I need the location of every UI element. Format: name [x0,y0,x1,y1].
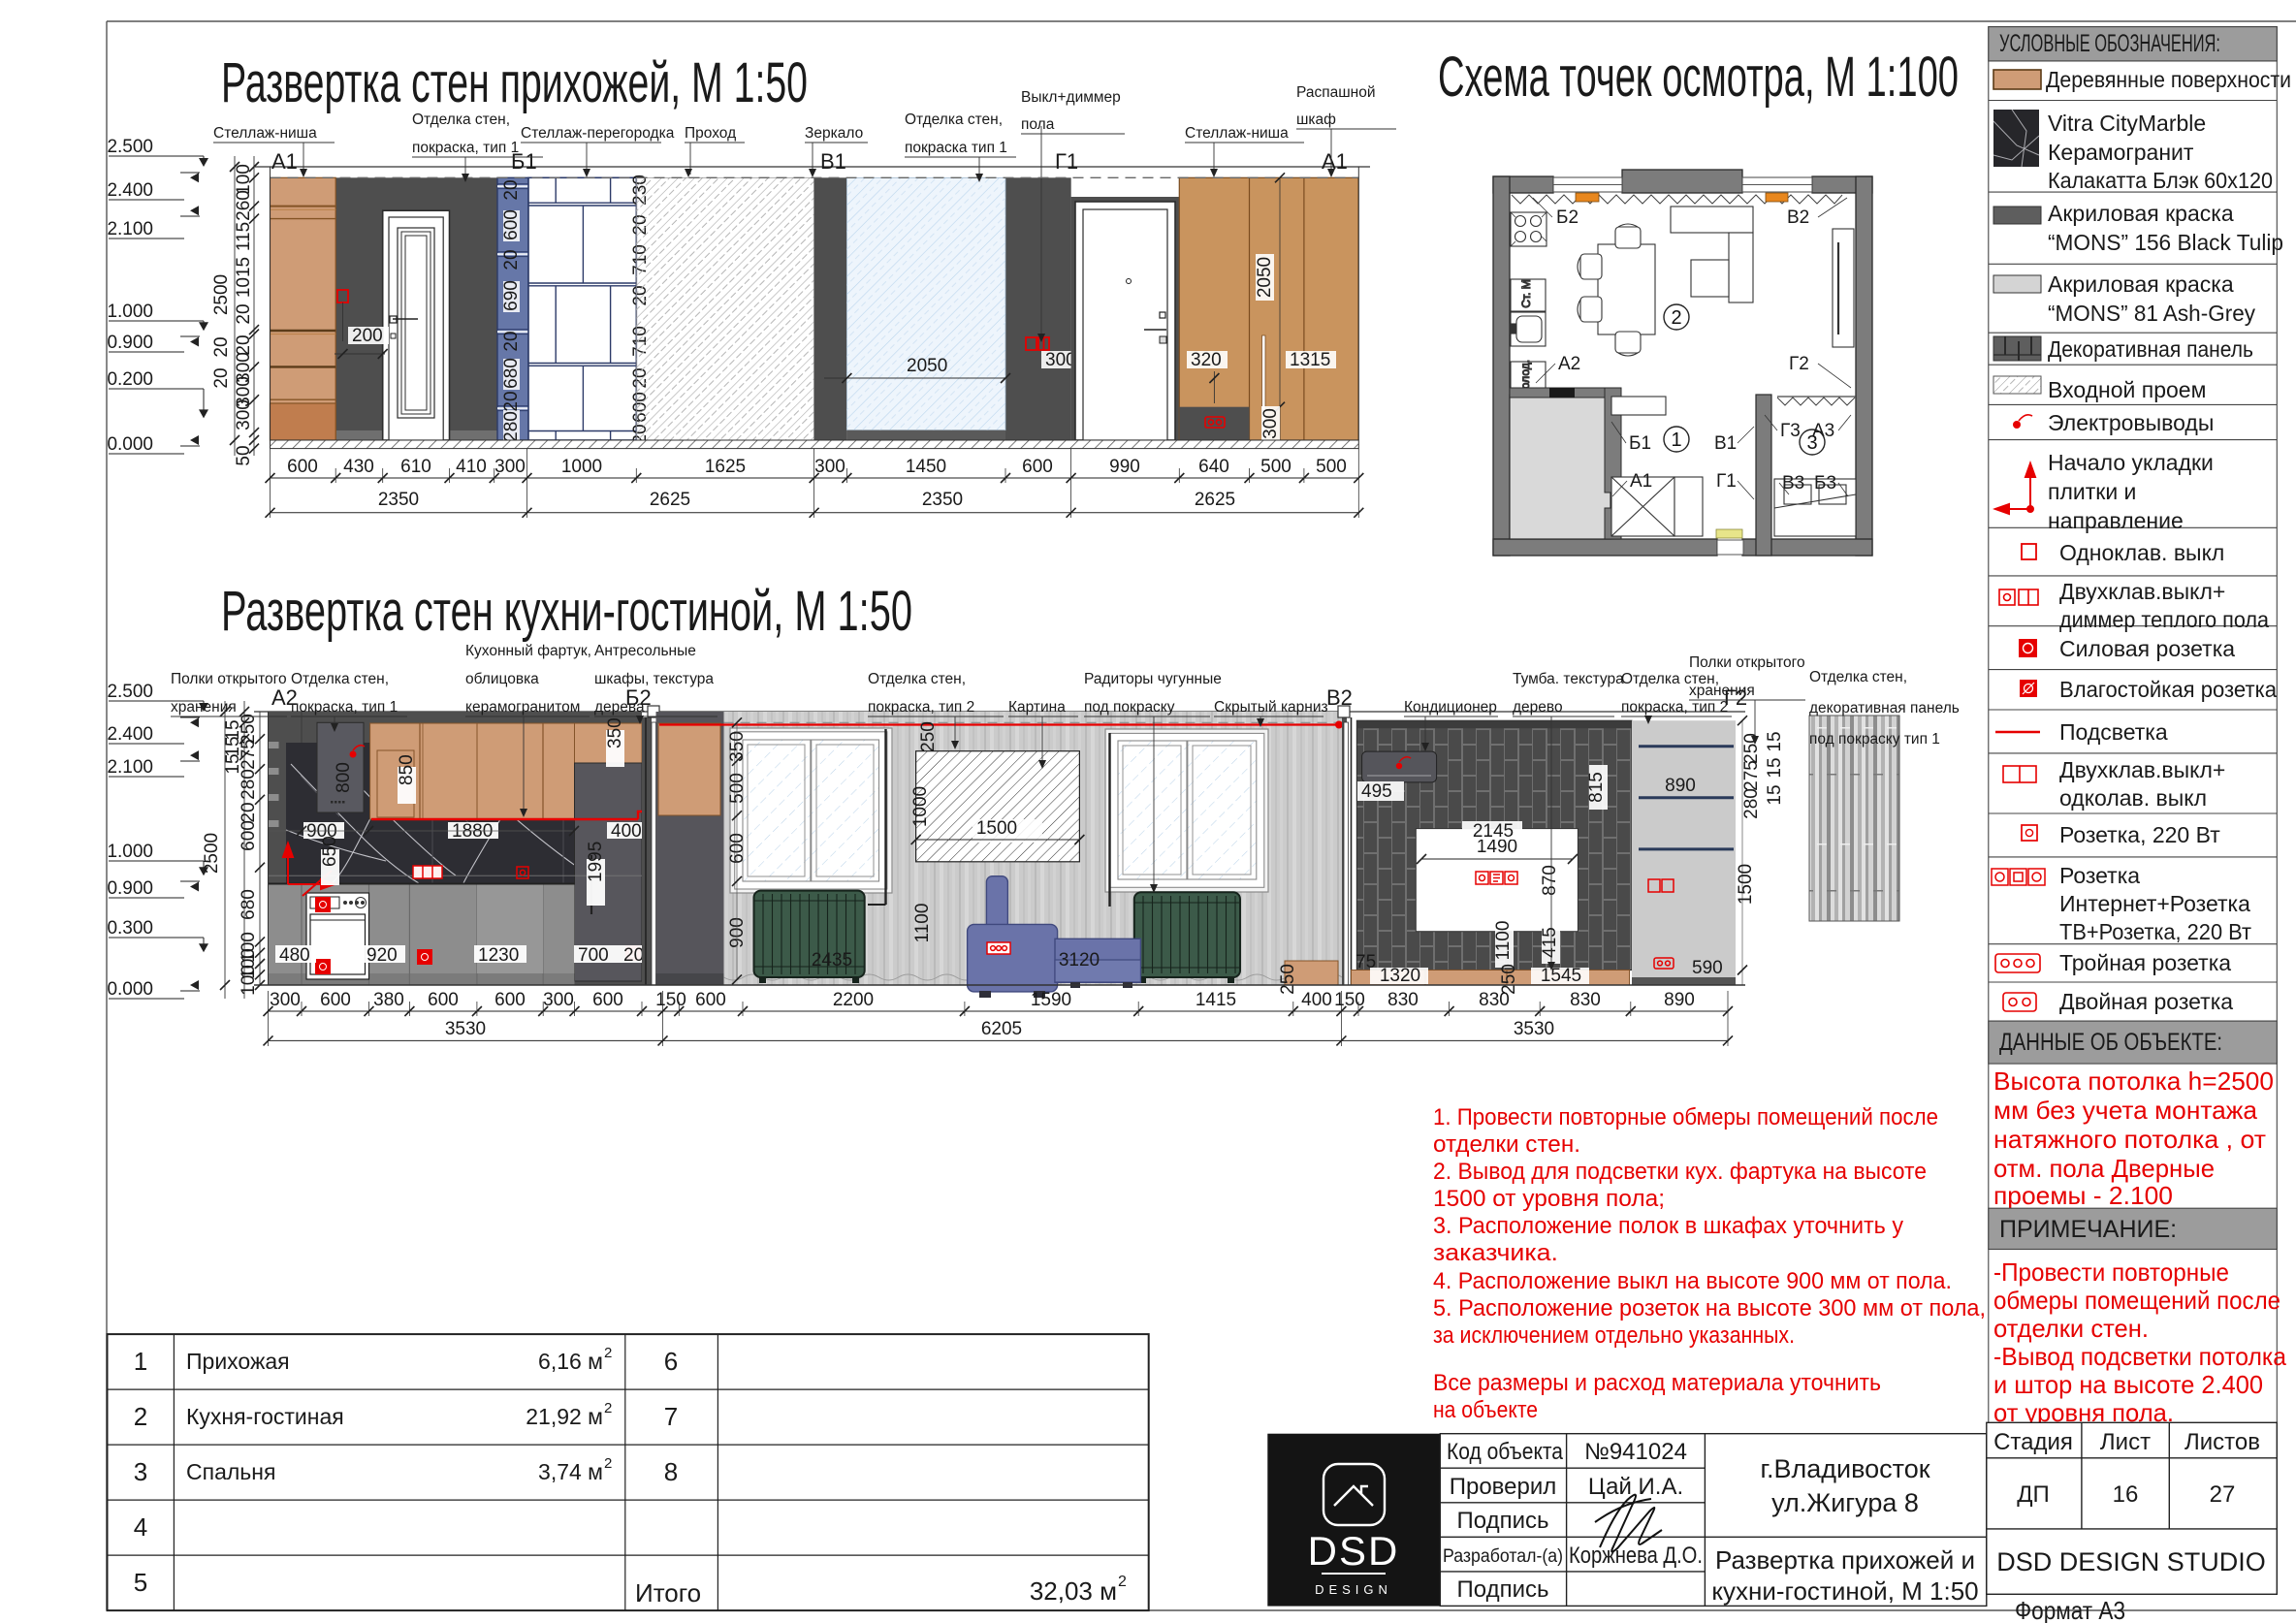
svg-text:Б2: Б2 [1556,207,1578,228]
svg-text:Проход: Проход [685,125,736,142]
svg-text:350: 350 [727,731,748,762]
svg-text:мм без учета монтажа: мм без учета монтажа [1993,1096,2258,1125]
svg-text:200: 200 [352,326,383,346]
svg-text:2.500: 2.500 [107,137,153,157]
svg-text:Отделка стен,: Отделка стен, [412,111,510,128]
svg-text:20: 20 [501,391,522,411]
svg-text:Силовая розетка: Силовая розетка [2059,636,2235,661]
svg-text:600: 600 [695,990,726,1010]
svg-text:шкафы, текстура: шкафы, текстура [594,671,714,687]
svg-text:7: 7 [664,1402,678,1431]
svg-text:15: 15 [1765,731,1785,751]
svg-text:Отделка стен,: Отделка стен, [868,671,966,687]
svg-text:600: 600 [428,990,459,1010]
svg-text:облицовка: облицовка [465,671,539,687]
svg-text:Декоративная панель: Декоративная панель [2048,336,2253,362]
svg-text:590: 590 [1692,958,1723,978]
svg-text:500: 500 [1316,457,1347,477]
svg-text:280: 280 [501,411,522,442]
svg-text:50: 50 [234,445,254,465]
svg-text:430: 430 [343,457,374,477]
svg-text:870: 870 [1540,865,1560,896]
svg-text:Прихожая: Прихожая [186,1349,290,1374]
svg-text:обмеры помещений после: обмеры помещений после [1993,1286,2280,1315]
svg-text:15: 15 [1765,757,1785,778]
svg-text:900: 900 [727,917,748,948]
svg-text:1000: 1000 [561,457,602,477]
svg-text:отделки стен.: отделки стен. [1993,1314,2149,1343]
svg-text:г.Владивосток: г.Владивосток [1760,1454,1929,1483]
svg-text:Кондиционер: Кондиционер [1404,699,1497,716]
svg-text:Одноклав. выкл: Одноклав. выкл [2059,540,2224,565]
svg-text:DESIGN: DESIGN [1315,1582,1392,1597]
svg-text:300: 300 [494,457,526,477]
svg-text:3: 3 [134,1457,147,1486]
svg-text:Лист: Лист [2100,1429,2151,1455]
svg-text:610: 610 [400,457,431,477]
svg-text:В1: В1 [1714,433,1737,454]
svg-text:1015: 1015 [234,257,254,298]
svg-text:350: 350 [605,717,625,748]
svg-text:2: 2 [604,1455,612,1472]
svg-text:1500 от уровня пола;: 1500 от уровня пола; [1433,1186,1665,1212]
svg-text:380: 380 [373,990,404,1010]
svg-text:2625: 2625 [1195,490,1235,510]
svg-text:Кухня-гостиная: Кухня-гостиная [186,1404,344,1429]
svg-text:600: 600 [501,209,522,240]
svg-text:700: 700 [578,945,609,966]
svg-text:27: 27 [2210,1481,2236,1508]
svg-text:под покраску тип 1: под покраску тип 1 [1809,731,1940,748]
svg-text:1. Провести повторные обмеры п: 1. Провести повторные обмеры помещений п… [1433,1104,1938,1130]
svg-text:ДАННЫЕ ОБ ОБЪЕКТЕ:: ДАННЫЕ ОБ ОБЪЕКТЕ: [1999,1029,2222,1056]
svg-text:5: 5 [134,1568,147,1597]
svg-text:керамогранитом: керамогранитом [465,699,580,716]
svg-text:Г1: Г1 [1055,149,1078,174]
svg-text:21,92 м: 21,92 м [526,1404,603,1429]
svg-text:Влагостойкая розетка: Влагостойкая розетка [2059,677,2277,702]
svg-text:“MONS” 81 Ash-Grey: “MONS” 81 Ash-Grey [2048,301,2255,326]
svg-text:150: 150 [1334,990,1365,1010]
svg-text:1100: 1100 [912,904,933,943]
svg-text:декоративная панель: декоративная панель [1809,700,1960,716]
svg-text:-Вывод подсветки потолка: -Вывод подсветки потолка [1993,1342,2287,1371]
svg-text:2350: 2350 [922,490,963,510]
svg-text:Б1: Б1 [1629,433,1651,454]
svg-text:Розетка, 220 Вт: Розетка, 220 Вт [2059,822,2220,847]
svg-text:850: 850 [397,754,417,785]
svg-text:0.200: 0.200 [107,369,153,390]
svg-text:Развертка стен прихожей, М 1:5: Развертка стен прихожей, М 1:50 [221,51,808,114]
svg-text:20: 20 [234,303,254,324]
svg-text:600: 600 [592,990,623,1010]
svg-text:отм. пола Дверные: отм. пола Дверные [1993,1154,2215,1183]
svg-text:Зеркало: Зеркало [805,125,863,142]
svg-text:1: 1 [134,1347,147,1376]
svg-text:320: 320 [1191,350,1222,370]
svg-text:В1: В1 [820,149,846,174]
svg-text:проемы - 2.100: проемы - 2.100 [1993,1181,2173,1210]
svg-text:2.400: 2.400 [107,724,153,745]
svg-text:500: 500 [727,773,748,804]
svg-text:2: 2 [604,1400,612,1416]
svg-text:Полки открытого: Полки открытого [171,671,287,687]
svg-text:3530: 3530 [1514,1019,1554,1039]
svg-text:А2: А2 [1558,354,1580,374]
svg-text:Выкл+диммер: Выкл+диммер [1021,89,1121,106]
svg-text:хранения: хранения [171,699,237,716]
svg-text:Розетка: Розетка [2059,863,2140,888]
svg-text:Стеллаж-перегородка: Стеллаж-перегородка [521,125,675,142]
svg-text:заказчика.: заказчика. [1433,1240,1558,1266]
svg-text:Двухклав.выкл+: Двухклав.выкл+ [2059,757,2225,782]
svg-text:2: 2 [1118,1574,1127,1590]
svg-text:Электровыводы: Электровыводы [2048,410,2214,435]
svg-text:Итого: Итого [635,1578,701,1607]
svg-text:300: 300 [234,399,254,430]
svg-text:Двухклав.выкл+: Двухклав.выкл+ [2059,579,2225,604]
svg-text:1450: 1450 [906,457,946,477]
svg-text:2050: 2050 [907,356,947,376]
svg-text:680: 680 [501,358,522,389]
svg-text:250: 250 [1741,733,1762,764]
svg-text:1100: 1100 [1493,921,1514,961]
svg-text:А3: А3 [1812,421,1834,441]
svg-text:6205: 6205 [981,1019,1022,1039]
svg-text:за исключением отдельно указан: за исключением отдельно указанных. [1433,1322,1795,1349]
svg-text:шкаф: шкаф [1296,111,1336,128]
svg-text:600: 600 [239,820,259,851]
svg-text:100: 100 [239,965,259,996]
svg-text:Высота потолка h=2500: Высота потолка h=2500 [1993,1066,2274,1096]
svg-text:DSD: DSD [1308,1528,1400,1574]
svg-text:680: 680 [239,889,259,920]
svg-text:Vitra CityMarble: Vitra CityMarble [2048,111,2206,136]
svg-text:Схема точек осмотра, М 1:100: Схема точек осмотра, М 1:100 [1438,46,1959,109]
svg-text:8: 8 [664,1457,678,1486]
svg-text:890: 890 [1665,776,1696,796]
svg-text:300: 300 [270,990,301,1010]
svg-text:300: 300 [814,457,845,477]
svg-text:20: 20 [239,802,259,822]
svg-text:1880: 1880 [452,821,493,842]
svg-text:ПРИМЕЧАНИЕ:: ПРИМЕЧАНИЕ: [1999,1216,2177,1243]
svg-text:Калакатта Блэк 60х120: Калакатта Блэк 60х120 [2048,168,2273,193]
svg-text:Ст. М: Ст. М [1519,279,1533,308]
svg-text:А2: А2 [271,685,298,710]
svg-text:Скрытый карниз: Скрытый карниз [1214,699,1328,716]
svg-text:кухни-гостиной, М 1:50: кухни-гостиной, М 1:50 [1711,1576,1978,1606]
svg-text:1: 1 [1671,430,1681,451]
svg-text:покраска, тип 2: покраска, тип 2 [1621,699,1728,716]
svg-text:2.400: 2.400 [107,180,153,201]
svg-text:плитки и: плитки и [2048,479,2136,504]
svg-text:Акриловая краска: Акриловая краска [2048,271,2234,297]
svg-text:3530: 3530 [445,1019,486,1039]
svg-text:830: 830 [1479,990,1510,1010]
svg-text:Подпись: Подпись [1457,1576,1549,1603]
svg-text:дерево: дерево [1513,699,1563,716]
svg-text:Подсветка: Подсветка [2059,719,2168,745]
svg-text:2.500: 2.500 [107,682,153,702]
svg-text:Проверил: Проверил [1450,1474,1557,1500]
svg-text:275: 275 [239,739,259,770]
svg-text:Б1: Б1 [511,149,537,174]
svg-text:640: 640 [1198,457,1229,477]
svg-text:250: 250 [1278,964,1298,995]
svg-text:DSD DESIGN STUDIO: DSD DESIGN STUDIO [1996,1547,2266,1576]
svg-text:600: 600 [727,833,748,864]
svg-text:100: 100 [234,164,254,195]
svg-text:В2: В2 [1787,207,1809,228]
svg-text:1320: 1320 [1380,966,1420,986]
svg-text:Развертка стен кухни-гостиной,: Развертка стен кухни-гостиной, М 1:50 [221,580,912,643]
svg-text:натяжного потолка , от: натяжного потолка , от [1993,1125,2266,1154]
svg-text:250: 250 [918,721,939,752]
svg-text:1.000: 1.000 [107,302,153,322]
svg-text:Стадия: Стадия [1993,1429,2073,1455]
svg-text:направление: направление [2048,508,2184,533]
svg-text:400: 400 [1301,990,1332,1010]
svg-text:Полки открытого: Полки открытого [1689,654,1805,671]
svg-text:Деревянные поверхности: Деревянные поверхности [2046,67,2291,92]
svg-text:В2: В2 [1326,685,1353,710]
svg-text:Акриловая краска: Акриловая краска [2048,201,2234,226]
svg-text:2350: 2350 [378,490,419,510]
svg-text:815: 815 [1586,772,1607,803]
svg-text:1590: 1590 [1031,990,1071,1010]
svg-text:Отделка стен,: Отделка стен, [291,671,389,687]
svg-text:275: 275 [1741,760,1762,791]
svg-text:2200: 2200 [833,990,874,1010]
svg-text:3,74 м: 3,74 м [538,1459,603,1484]
svg-text:Г2: Г2 [1724,685,1747,710]
svg-text:под покраску: под покраску [1084,699,1175,716]
svg-text:Спальня: Спальня [186,1459,275,1484]
svg-text:0.000: 0.000 [107,434,153,455]
svg-text:Двойная розетка: Двойная розетка [2059,989,2233,1014]
svg-text:2: 2 [1671,307,1681,329]
svg-text:-Провести повторные: -Провести повторные [1993,1257,2229,1287]
svg-text:32,03 м: 32,03 м [1030,1576,1117,1606]
svg-text:500: 500 [1260,457,1291,477]
svg-text:пола: пола [1021,116,1055,133]
svg-text:1000: 1000 [910,786,931,827]
svg-text:Тройная розетка: Тройная розетка [2059,950,2231,975]
svg-text:Радиторы чугунные: Радиторы чугунные [1084,671,1222,687]
svg-text:0.000: 0.000 [107,979,153,1000]
svg-text:600: 600 [320,990,351,1010]
svg-text:1500: 1500 [1736,864,1756,905]
svg-text:Разработал-(а): Разработал-(а) [1443,1546,1563,1567]
svg-text:на объекте: на объекте [1433,1397,1538,1423]
svg-text:600: 600 [494,990,526,1010]
svg-text:600: 600 [1022,457,1053,477]
svg-text:4: 4 [134,1512,147,1542]
svg-text:16: 16 [2113,1481,2139,1508]
svg-text:300: 300 [543,990,574,1010]
svg-text:Распашной: Распашной [1296,84,1375,101]
svg-text:3. Расположение полок в шкафах: 3. Расположение полок в шкафах уточнить … [1433,1213,1904,1239]
svg-text:и штор на высоте 2.400: и штор на высоте 2.400 [1993,1370,2263,1399]
svg-text:А1: А1 [1322,149,1348,174]
svg-text:Картина: Картина [1008,699,1066,716]
svg-text:400: 400 [611,821,642,842]
svg-text:А1: А1 [1630,471,1652,492]
svg-text:2145: 2145 [1473,821,1514,842]
svg-text:5. Расположение розеток на выс: 5. Расположение розеток на высоте 300 мм… [1433,1295,1986,1321]
svg-text:Стеллаж-ниша: Стеллаж-ниша [1185,125,1289,142]
svg-text:800: 800 [334,762,354,793]
svg-text:Г2: Г2 [1789,354,1809,374]
svg-text:Стеллаж-ниша: Стеллаж-ниша [213,125,317,142]
svg-text:890: 890 [1664,990,1695,1010]
svg-text:2625: 2625 [650,490,690,510]
svg-text:990: 990 [1109,457,1140,477]
svg-text:покраска, тип 1: покраска, тип 1 [412,140,519,156]
svg-text:отделки стен.: отделки стен. [1433,1131,1580,1158]
svg-text:690: 690 [501,280,522,311]
svg-text:2.100: 2.100 [107,219,153,239]
svg-text:покраска тип 1: покраска тип 1 [905,140,1007,156]
svg-text:2. Вывод для подсветки кух. фа: 2. Вывод для подсветки кух. фартука на в… [1433,1159,1927,1185]
svg-text:Входной проем: Входной проем [2048,377,2206,402]
svg-text:№941024: №941024 [1584,1439,1687,1465]
svg-text:830: 830 [1570,990,1601,1010]
svg-text:Листов: Листов [2184,1429,2260,1455]
svg-text:260: 260 [234,190,254,221]
svg-text:0.300: 0.300 [107,918,153,939]
svg-text:6,16 м: 6,16 м [538,1349,603,1374]
svg-text:650: 650 [320,836,340,867]
svg-text:1545: 1545 [1541,966,1581,986]
svg-text:УСЛОВНЫЕ ОБОЗНАЧЕНИЯ:: УСЛОВНЫЕ ОБОЗНАЧЕНИЯ: [1999,30,2220,57]
svg-text:1625: 1625 [705,457,746,477]
svg-text:Все размеры и расход материала: Все размеры и расход материала уточнить [1433,1370,1881,1396]
svg-text:Подпись: Подпись [1457,1508,1549,1534]
svg-text:2500: 2500 [202,833,222,874]
svg-text:480: 480 [279,945,310,966]
svg-text:2: 2 [134,1402,147,1431]
svg-text:2050: 2050 [1255,257,1275,298]
svg-text:2.100: 2.100 [107,757,153,778]
svg-text:280: 280 [1741,788,1762,819]
svg-text:Кухонный фартук,: Кухонный фартук, [465,643,591,659]
svg-text:Антресольные: Антресольные [594,643,696,659]
svg-text:1230: 1230 [478,945,519,966]
svg-text:Керамогранит: Керамогранит [2048,140,2194,165]
svg-text:300: 300 [1260,408,1281,439]
svg-text:Начало укладки: Начало укладки [2048,450,2214,475]
svg-text:Код объекта: Код объекта [1447,1439,1564,1465]
svg-text:600: 600 [287,457,318,477]
svg-text:Отделка стен,: Отделка стен, [1809,669,1907,685]
svg-text:1315: 1315 [1290,350,1330,370]
svg-text:920: 920 [367,945,398,966]
svg-text:115: 115 [234,222,254,251]
svg-text:“MONS” 156 Black Tulip: “MONS” 156 Black Tulip [2048,230,2283,255]
svg-text:1500: 1500 [976,818,1017,839]
svg-text:20: 20 [501,331,522,351]
svg-text:2435: 2435 [812,950,852,971]
svg-text:495: 495 [1361,781,1392,802]
svg-text:Б2: Б2 [625,685,652,710]
svg-text:покраска, тип 2: покраска, тип 2 [868,699,974,716]
svg-text:4. Расположение выкл на высоте: 4. Расположение выкл на высоте 900 мм от… [1433,1268,1952,1294]
svg-text:диммер теплого пола: диммер теплого пола [2059,607,2269,632]
svg-text:Г1: Г1 [1716,471,1737,492]
svg-text:ТВ+Розетка, 220 Вт: ТВ+Розетка, 220 Вт [2059,919,2251,944]
svg-text:Коржнева Д.О.: Коржнева Д.О. [1569,1543,1703,1569]
svg-text:410: 410 [456,457,487,477]
svg-text:Г3: Г3 [1780,421,1801,441]
svg-text:Тумба. текстура: Тумба. текстура [1513,671,1624,687]
svg-text:830: 830 [1387,990,1419,1010]
svg-text:2: 2 [604,1345,612,1361]
svg-text:15: 15 [1765,784,1785,805]
svg-text:А1: А1 [271,149,298,174]
svg-text:Отделка стен,: Отделка стен, [905,111,1003,128]
svg-text:0.900: 0.900 [107,878,153,899]
svg-text:1995: 1995 [586,842,606,882]
svg-text:1415: 1415 [1196,990,1236,1010]
svg-text:150: 150 [655,990,686,1010]
svg-text:покраска, тип 1: покраска, тип 1 [291,699,398,716]
svg-text:415: 415 [1540,927,1560,958]
svg-text:Интернет+Розетка: Интернет+Розетка [2059,891,2250,916]
svg-text:ДП: ДП [2017,1481,2050,1508]
svg-text:6: 6 [664,1347,678,1376]
svg-text:Развертка прихожей и: Развертка прихожей и [1715,1545,1975,1575]
svg-text:ул.Жигура 8: ул.Жигура 8 [1771,1488,1919,1517]
svg-text:20: 20 [501,179,522,200]
svg-text:20: 20 [211,336,232,357]
svg-text:20: 20 [211,367,232,388]
svg-text:1.000: 1.000 [107,842,153,862]
svg-text:Б3: Б3 [1814,473,1836,493]
svg-text:0.900: 0.900 [107,333,153,353]
svg-text:одколав. выкл: одколав. выкл [2059,785,2207,811]
svg-text:Формат А3: Формат А3 [2015,1596,2125,1623]
svg-text:3120: 3120 [1059,950,1100,971]
svg-text:2500: 2500 [211,274,232,315]
svg-text:20: 20 [501,249,522,270]
svg-text:280: 280 [239,769,259,800]
